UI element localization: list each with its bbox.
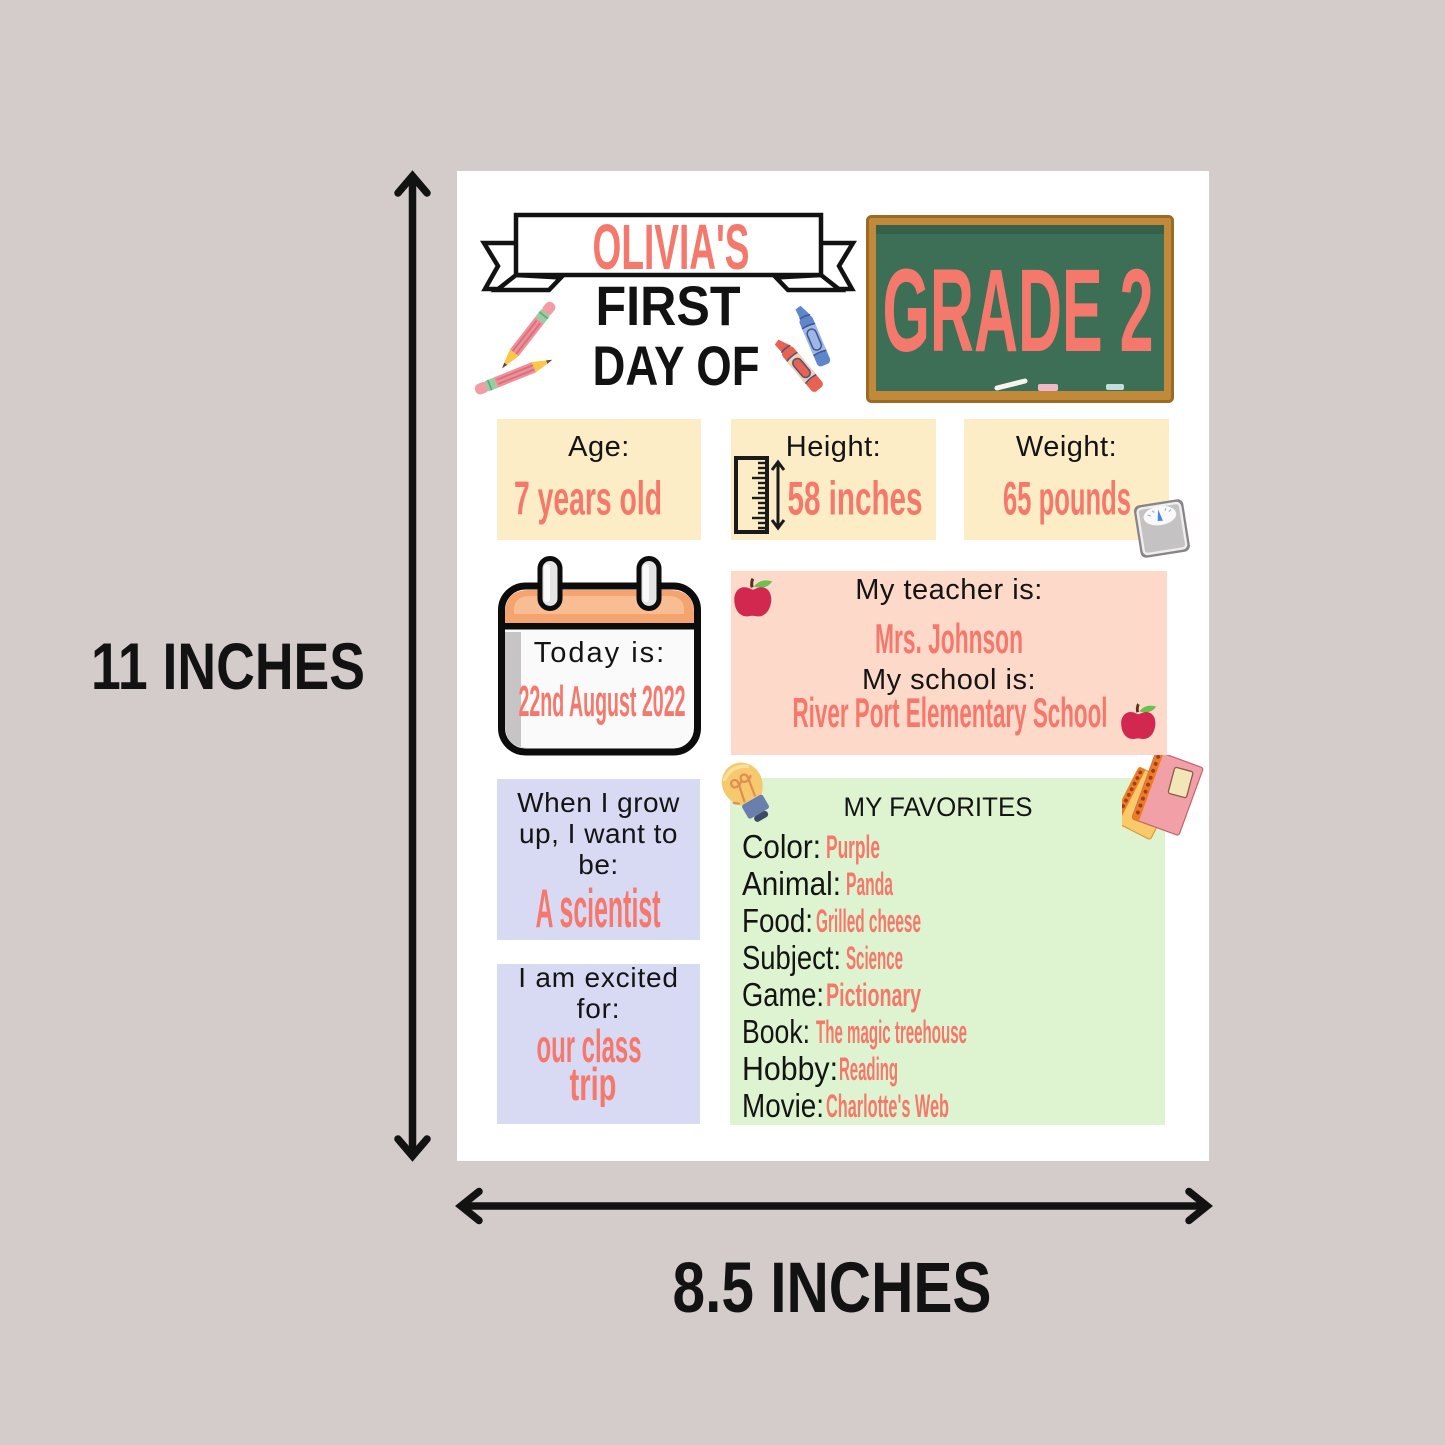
svg-text:8.5 INCHES: 8.5 INCHES — [673, 1249, 992, 1328]
svg-text:Reading: Reading — [839, 1051, 898, 1087]
svg-text:Movie:: Movie: — [742, 1087, 824, 1124]
svg-text:Mrs. Johnson: Mrs. Johnson — [875, 615, 1023, 661]
svg-text:22nd August 2022: 22nd August 2022 — [519, 677, 686, 726]
svg-text:trip: trip — [570, 1058, 617, 1107]
svg-text:Animal:: Animal: — [742, 865, 841, 902]
svg-text:Today is:: Today is: — [534, 637, 666, 669]
svg-text:Pictionary: Pictionary — [826, 977, 921, 1013]
svg-text:The magic treehouse: The magic treehouse — [816, 1014, 967, 1050]
svg-text:River Port Elementary School: River Port Elementary School — [793, 689, 1108, 736]
svg-text:FIRST: FIRST — [596, 274, 741, 337]
svg-text:Hobby:: Hobby: — [742, 1050, 838, 1087]
svg-text:OLIVIA'S: OLIVIA'S — [593, 211, 750, 283]
svg-text:Purple: Purple — [826, 829, 880, 865]
svg-text:7 years old: 7 years old — [514, 477, 662, 525]
svg-text:DAY OF: DAY OF — [593, 334, 760, 396]
svg-text:65 pounds: 65 pounds — [1003, 477, 1131, 525]
svg-text:Game:: Game: — [742, 976, 824, 1013]
svg-text:GRADE 2: GRADE 2 — [883, 245, 1154, 377]
svg-text:Science: Science — [846, 940, 903, 976]
svg-text:58 inches: 58 inches — [788, 477, 923, 525]
svg-text:A scientist: A scientist — [536, 883, 661, 935]
svg-text:Grilled cheese: Grilled cheese — [816, 903, 921, 939]
svg-text:Food:: Food: — [742, 902, 813, 939]
svg-text:Subject:: Subject: — [742, 939, 841, 976]
svg-text:11 INCHES: 11 INCHES — [91, 629, 365, 703]
svg-text:Book:: Book: — [742, 1013, 810, 1050]
svg-text:Panda: Panda — [846, 866, 893, 902]
svg-text:Charlotte's Web: Charlotte's Web — [826, 1088, 949, 1124]
